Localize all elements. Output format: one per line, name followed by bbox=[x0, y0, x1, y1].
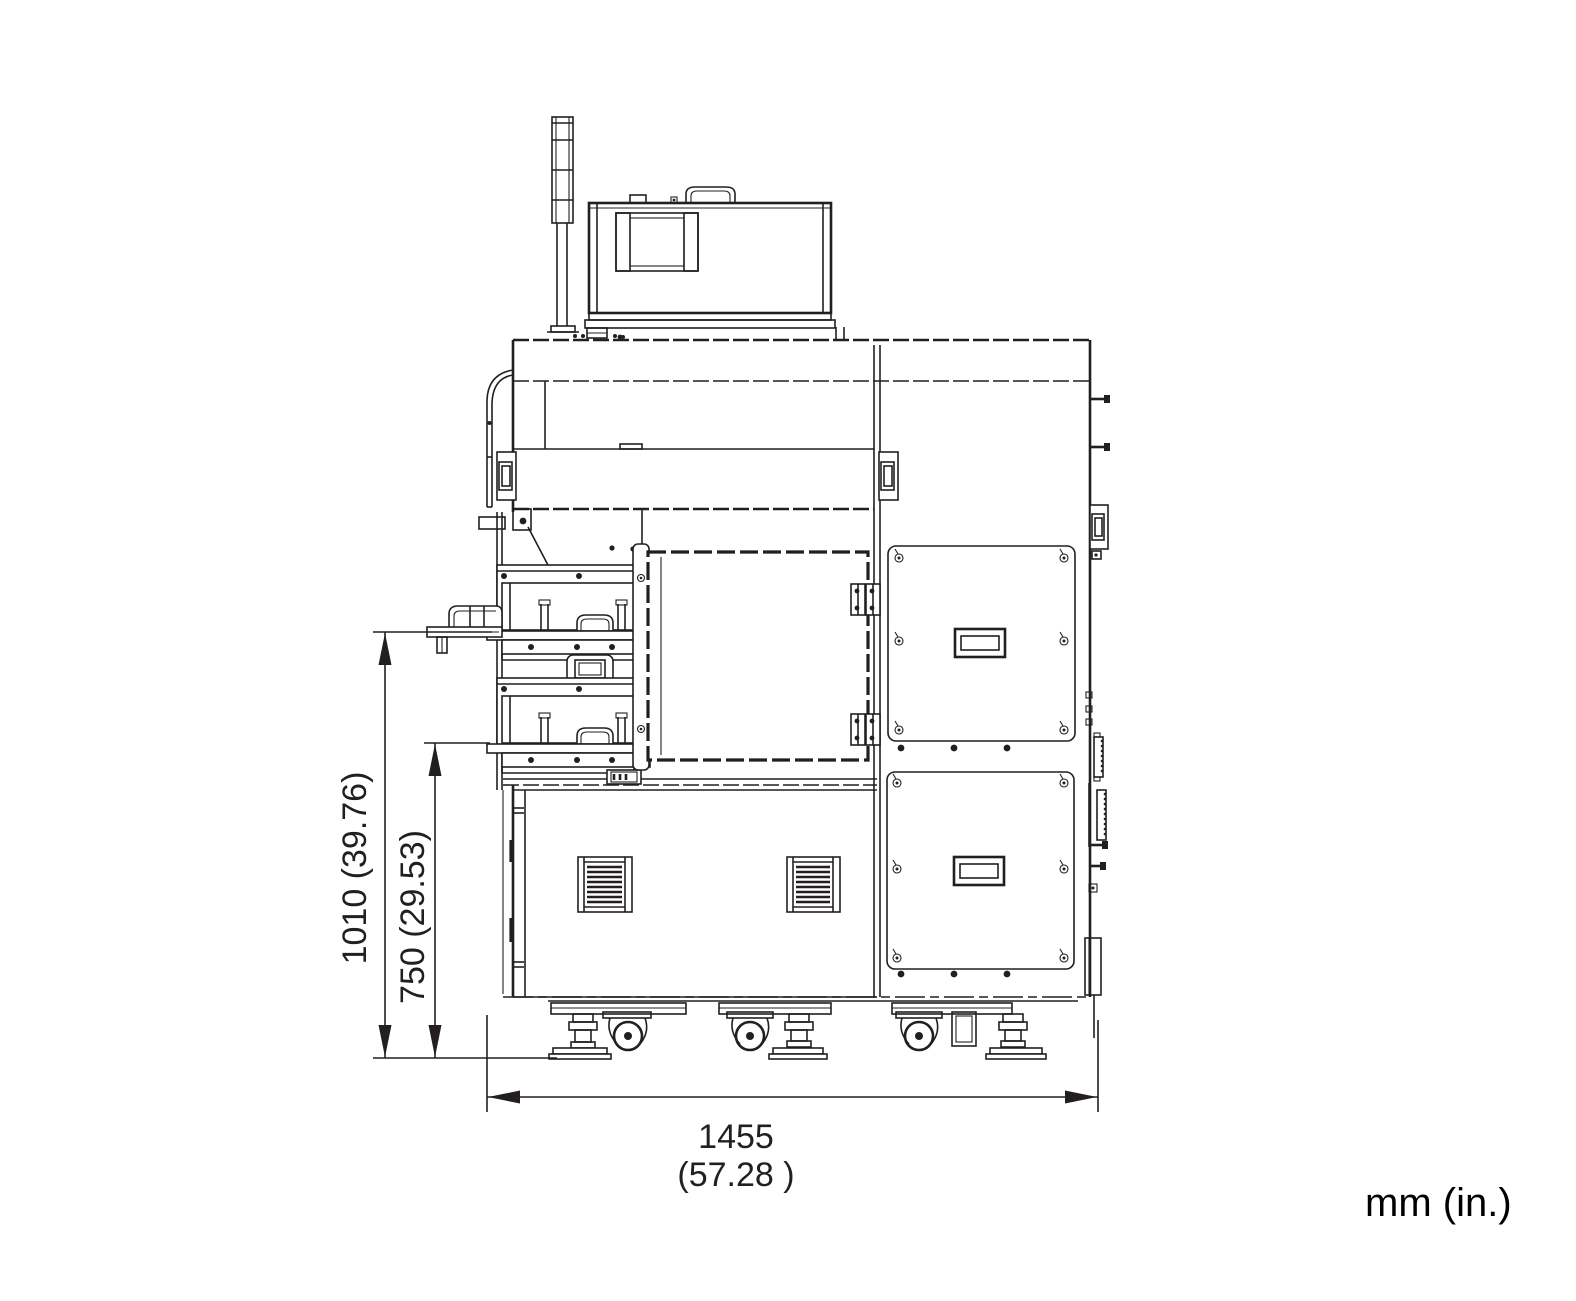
leveling-foot-center bbox=[769, 1014, 827, 1059]
dim-overall-height-label: 1010 (39.76) bbox=[336, 772, 374, 965]
right-edge-handle bbox=[1090, 505, 1108, 559]
right-edge-fittings bbox=[1085, 692, 1108, 1038]
dim-overall-width-mm: 1455 bbox=[698, 1118, 774, 1156]
units-note: mm (in.) bbox=[1365, 1181, 1512, 1225]
leveling-foot-left bbox=[549, 1014, 611, 1059]
right-section-left-handle bbox=[879, 452, 898, 500]
door-hinge-lower bbox=[851, 714, 880, 745]
terminal-dots-b bbox=[1104, 793, 1107, 836]
dim-table-height: 750 (29.53) bbox=[394, 743, 442, 1058]
vent-left bbox=[578, 857, 632, 912]
load-port-upper bbox=[487, 565, 650, 660]
left-curved-panel bbox=[479, 370, 513, 529]
dim-overall-width: 1455 (57.28 ) bbox=[487, 1091, 1098, 1195]
dim-overall-height: 1010 (39.76) bbox=[336, 632, 392, 1058]
monitor-enclosure bbox=[585, 187, 835, 339]
load-port-lower bbox=[487, 678, 650, 784]
technical-drawing-canvas: 1010 (39.76) 750 (29.53) 1455 (57.28 ) m… bbox=[0, 0, 1576, 1301]
right-panel-lower bbox=[887, 772, 1074, 977]
caster-center bbox=[727, 1012, 773, 1050]
machine-front-elevation: 1010 (39.76) 750 (29.53) 1455 (57.28 ) m… bbox=[0, 0, 1576, 1301]
leveling-foot-right bbox=[952, 1012, 1046, 1059]
right-edge-pins-upper bbox=[1090, 395, 1110, 451]
vent-right bbox=[787, 857, 840, 912]
left-shelf bbox=[427, 606, 502, 653]
right-panel-upper bbox=[888, 546, 1075, 751]
caster-left bbox=[603, 1012, 651, 1050]
base-rails bbox=[503, 997, 1090, 1014]
center-door bbox=[633, 544, 880, 770]
dim-table-height-label: 750 (29.53) bbox=[394, 830, 432, 1004]
dim-overall-width-in: (57.28 ) bbox=[677, 1156, 794, 1194]
signal-tower bbox=[547, 117, 579, 332]
caster-right bbox=[896, 1012, 942, 1050]
door-hinge-upper bbox=[851, 584, 880, 615]
left-door-handle bbox=[497, 452, 516, 500]
